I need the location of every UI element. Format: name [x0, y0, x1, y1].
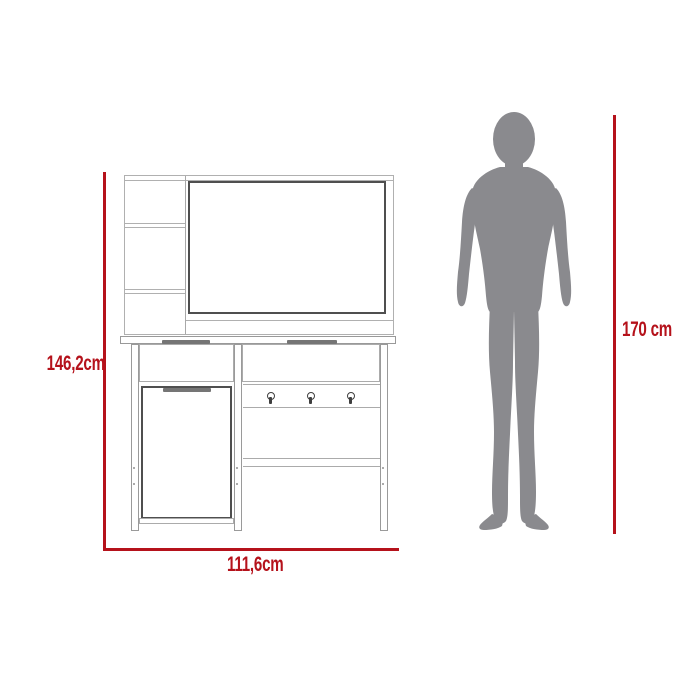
desk-leg-middle	[234, 344, 242, 531]
drawer-right	[242, 344, 380, 382]
width-dimension-label: 111,6cm	[191, 554, 319, 575]
screw-hole	[133, 467, 135, 469]
desk-leg-left	[131, 344, 139, 531]
height-dimension-label: 146,2cm	[24, 353, 98, 374]
pinboard-panel	[188, 181, 386, 314]
lower-cross-rail	[243, 458, 380, 467]
product-dimension-diagram: 146,2cm 111,6cm 170 cm	[0, 0, 700, 700]
screw-hole	[236, 483, 238, 485]
hutch-shelf-divider	[185, 176, 186, 334]
screw-hole	[382, 467, 384, 469]
cabinet-door	[141, 386, 232, 519]
coat-hook-icon	[307, 392, 314, 405]
hutch-shelf-upper	[125, 223, 185, 228]
width-dimension-line	[103, 548, 399, 551]
screw-hole	[382, 483, 384, 485]
person-height-dimension-line	[613, 115, 616, 534]
human-silhouette-icon	[447, 112, 581, 531]
coat-hook-icon	[267, 392, 274, 405]
screw-hole	[133, 483, 135, 485]
screw-hole	[236, 467, 238, 469]
cabinet-door-handle	[163, 388, 211, 392]
drawer-right-handle	[287, 340, 337, 344]
hutch-shelf-lower	[125, 289, 185, 294]
person-height-dimension-label: 170 cm	[622, 319, 700, 340]
drawer-left-handle	[162, 340, 210, 344]
base-stretcher	[139, 518, 234, 524]
coat-hook-icon	[347, 392, 354, 405]
desk-leg-right	[380, 344, 388, 531]
drawer-left	[139, 344, 234, 382]
under-pinboard-line	[186, 320, 394, 321]
